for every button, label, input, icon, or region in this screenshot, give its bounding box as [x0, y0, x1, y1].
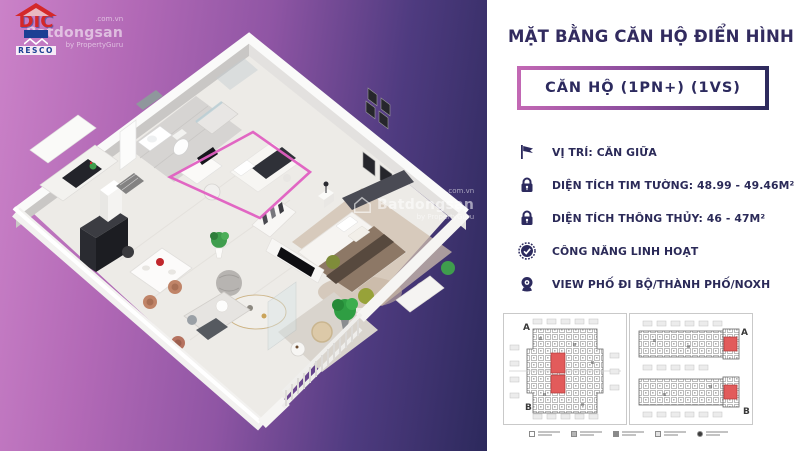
logo-subtext: RESCO [16, 46, 56, 55]
feature-row: DIỆN TÍCH TIM TƯỜNG: 48.99 - 49.46M² [518, 176, 790, 194]
lock-icon [518, 176, 536, 194]
logo-wave-icon [24, 30, 48, 38]
hero-gradient-background: .com.vn Batdongsan by PropertyGuru .com.… [0, 0, 487, 451]
block-label: A [523, 323, 530, 333]
highlighted-units [551, 353, 565, 393]
flower-vase [156, 258, 164, 266]
corner-plant [326, 255, 340, 269]
balcony-table [291, 342, 305, 356]
apartment-3d-render [0, 0, 487, 451]
flag-icon [518, 143, 536, 161]
legend-item [529, 430, 560, 437]
feature-text: DIỆN TÍCH TIM TƯỜNG: 48.99 - 49.46M² [552, 179, 794, 192]
table-lamp [324, 182, 329, 187]
page-title: MẶT BẰNG CĂN HỘ ĐIỂN HÌNH [508, 27, 794, 46]
watermark-by: by PropertyGuru [377, 214, 474, 221]
watermark: .com.vn Batdongsan by PropertyGuru [352, 188, 474, 221]
unit-type-badge: CĂN HỘ (1PN+) (1VS) [517, 66, 769, 110]
dic-resco-logo: DIC RESCO [6, 3, 66, 57]
legend-marker [613, 431, 619, 437]
legend-marker [697, 431, 703, 437]
pouf [216, 270, 242, 296]
feature-text: VIEW PHỐ ĐI BỘ/THÀNH PHỐ/NOXH [552, 278, 770, 291]
info-panel: MẶT BẰNG CĂN HỘ ĐIỂN HÌNH CĂN HỘ (1PN+) … [487, 0, 800, 451]
legend-item [655, 430, 686, 437]
feature-row: VỊ TRÍ: CĂN GIỮA [518, 143, 790, 161]
feature-row: CÔNG NĂNG LINH HOẠT [518, 242, 790, 260]
unit-type-label: CĂN HỘ (1PN+) (1VS) [521, 70, 765, 106]
legend-item [613, 430, 644, 437]
balcony-armchair [312, 322, 332, 342]
legend-marker [571, 431, 577, 437]
feature-list: VỊ TRÍ: CĂN GIỮA DIỆN TÍCH TIM TƯỜNG: 48… [518, 143, 790, 308]
block-label: B [525, 403, 532, 413]
legend-marker [655, 431, 661, 437]
block-label: B [743, 407, 750, 417]
feature-row: VIEW PHỐ ĐI BỘ/THÀNH PHỐ/NOXH [518, 275, 790, 293]
dining-chair-dark [122, 246, 134, 258]
check-badge-icon [518, 242, 536, 260]
legend-item [697, 430, 728, 437]
legend-item [571, 430, 602, 437]
feature-text: DIỆN TÍCH THÔNG THỦY: 46 - 47M² [552, 212, 765, 225]
feature-text: CÔNG NĂNG LINH HOẠT [552, 245, 698, 258]
block-label: A [741, 328, 748, 338]
floorplate-right [629, 313, 753, 425]
house-icon [352, 195, 372, 215]
promo-poster: .com.vn Batdongsan by PropertyGuru .com.… [0, 0, 800, 451]
bedroom-plant [441, 261, 455, 275]
feature-text: VỊ TRÍ: CĂN GIỮA [552, 146, 657, 159]
logo-roof-icon [15, 3, 57, 16]
lock-icon [518, 209, 536, 227]
floorplate-diagrams: A B A B [503, 313, 753, 437]
logo-text: DIC [6, 14, 66, 30]
feature-row: DIỆN TÍCH THÔNG THỦY: 46 - 47M² [518, 209, 790, 227]
floorplate-left [503, 313, 627, 425]
legend-marker [529, 431, 535, 437]
watermark-suffix: .com.vn [377, 188, 474, 195]
floorplate-legend [503, 430, 753, 437]
webcam-icon [518, 275, 536, 293]
watermark-text: Batdongsan [377, 197, 474, 213]
